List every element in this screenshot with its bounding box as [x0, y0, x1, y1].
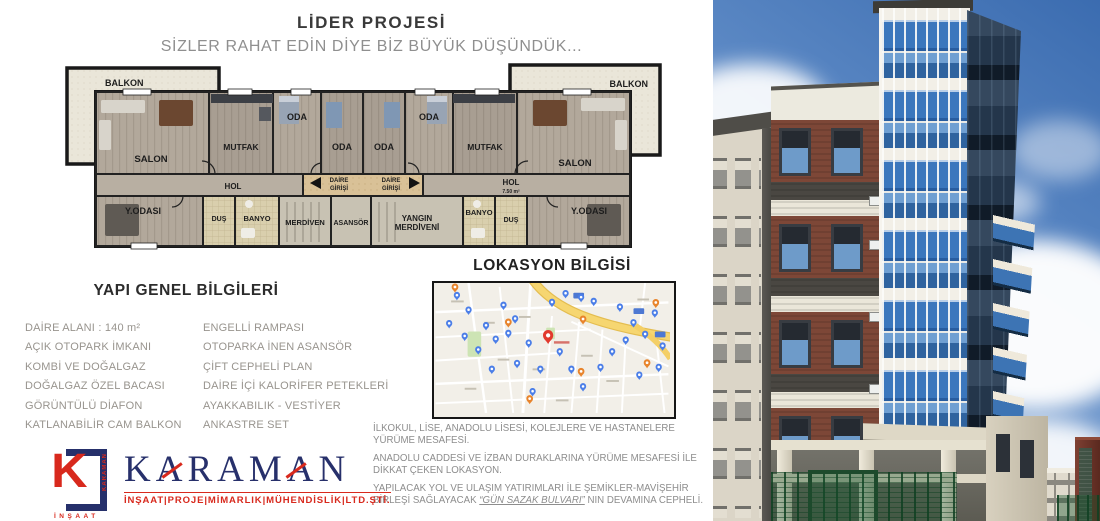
feature-item: ÇİFT CEPHELİ PLAN: [203, 358, 389, 377]
entrance-label-left-1: DAİRE: [330, 177, 349, 184]
feature-item: DAİRE ALANI : 140 m²: [25, 319, 182, 338]
logo-wordmark: KARAMAN: [124, 451, 391, 488]
logo-vertical-text: KARAMAN: [102, 453, 108, 491]
window: [779, 128, 811, 176]
room-label-mutfak-left: MUTFAK: [223, 142, 259, 152]
construction-fence-right: [1057, 495, 1100, 521]
window: [831, 128, 863, 176]
window: [1020, 440, 1034, 478]
map-drawing: [434, 283, 670, 413]
entrance-label-left-2: GİRİŞİ: [330, 185, 348, 192]
location-notes: İLKOKUL, LİSE, ANADOLU LİSESİ, KOLEJLERE…: [373, 423, 713, 514]
feature-item: ANKASTRE SET: [203, 416, 389, 435]
room-label-balkon-right: BALKON: [610, 79, 649, 89]
room-label-oda-right-2: ODA: [374, 142, 395, 152]
logo-mark: K KARAMAN İNŞAAT: [52, 447, 112, 511]
feature-item: KATLANABİLİR CAM BALKON: [25, 416, 182, 435]
feature-item: DAİRE İÇİ KALORİFER PETEKLERİ: [203, 377, 389, 396]
paragraph-3: YAPILACAK YOL VE ULAŞIM YATIRIMLARI İLE …: [373, 483, 713, 506]
paragraph-2: ANADOLU CADDESİ VE İZBAN DURAKLARINA YÜR…: [373, 453, 713, 476]
feature-item: AYAKKABILIK - VESTİYER: [203, 397, 389, 416]
feature-item: AÇIK OTOPARK İMKANI: [25, 338, 182, 357]
flyer-panel: LİDER PROJESİ SİZLER RAHAT EDİN DİYE BİZ…: [0, 0, 713, 521]
room-label-oda-left-1: ODA: [287, 112, 308, 122]
room-label-yangin-1: YANGIN: [402, 214, 433, 223]
logo-word-block: KARAMAN İNŞAAT|PROJE|MİMARLIK|MÜHENDİSLİ…: [124, 447, 391, 508]
plan-corridor: [96, 174, 630, 196]
paragraph-1: İLKOKUL, LİSE, ANADOLU LİSESİ, KOLEJLERE…: [373, 423, 713, 446]
features-left-column: DAİRE ALANI : 140 m²AÇIK OTOPARK İMKANIK…: [25, 319, 182, 435]
fence-gate: [808, 470, 878, 521]
neighbor-windows-grid: [713, 158, 761, 518]
neighbor-building: [713, 128, 773, 521]
features-right-column: ENGELLİ RAMPASIOTOPARKA İNEN ASANSÖRÇİFT…: [203, 319, 389, 435]
boulevard-name: “GÜN SAZAK BULVARI”: [479, 495, 585, 506]
room-label-yodasi-right: Y.ODASI: [571, 206, 607, 216]
feature-item: KOMBİ VE DOĞALGAZ: [25, 358, 182, 377]
floor-plan: BALKON BALKON SALON MUTFAK ODA ODA ODA O…: [63, 62, 667, 256]
room-label-balkon-left: BALKON: [105, 78, 144, 88]
room-label-dus-left: DUŞ: [212, 216, 227, 223]
room-label-hol-area: 7.50 m²: [502, 189, 520, 195]
logo-tagline: İNŞAAT|PROJE|MİMARLIK|MÜHENDİSLİK|LTD.ŞT…: [124, 492, 391, 506]
side-wall: [986, 416, 1048, 521]
feature-item: ENGELLİ RAMPASI: [203, 319, 389, 338]
window: [831, 224, 863, 272]
paragraph-3-tail: NIN DEVAMINA CEPHELİ.: [585, 495, 703, 506]
room-label-banyo-left: BANYO: [243, 214, 270, 223]
room-label-salon-left: SALON: [134, 154, 167, 165]
room-label-asansor: ASANSÖR: [333, 218, 368, 227]
window: [779, 224, 811, 272]
feature-item: DOĞALGAZ ÖZEL BACASI: [25, 377, 182, 396]
karaman-logo: K KARAMAN İNŞAAT KARAMAN İNŞAAT|PROJE|Mİ…: [52, 447, 391, 511]
feature-item: OTOPARKA İNEN ASANSÖR: [203, 338, 389, 357]
cloud: [1010, 120, 1100, 180]
room-label-merdiven: MERDİVEN: [285, 218, 325, 227]
room-label-oda-left-2: ODA: [332, 142, 353, 152]
window: [779, 320, 811, 368]
logo-insaat-label: İNŞAAT: [54, 513, 99, 520]
floor-plan-drawing: BALKON BALKON SALON MUTFAK ODA ODA ODA O…: [63, 62, 667, 256]
room-label-banyo-right: BANYO: [465, 208, 492, 217]
location-heading: LOKASYON BİLGİSİ: [432, 257, 672, 275]
logo-k-letter: K: [51, 443, 87, 501]
room-label-salon-right: SALON: [558, 158, 591, 169]
feature-item: GÖRÜNTÜLÜ DİAFON: [25, 397, 182, 416]
room-label-hol-right: HOL: [503, 178, 520, 187]
project-subtitle: SİZLER RAHAT EDİN DİYE BİZ BÜYÜK DÜŞÜNDÜ…: [15, 38, 728, 56]
room-label-yodasi-left: Y.ODASI: [125, 206, 161, 216]
room-label-oda-right-1: ODA: [419, 112, 440, 122]
window: [831, 320, 863, 368]
window: [996, 434, 1010, 472]
entrance-label-right-1: DAİRE: [382, 177, 401, 184]
room-label-mutfak-right: MUTFAK: [467, 142, 503, 152]
building-photo: [713, 0, 1100, 521]
general-info-heading: YAPI GENEL BİLGİLERİ: [20, 282, 352, 300]
location-map: [432, 281, 676, 419]
room-label-yangin-2: MERDİVENİ: [395, 223, 439, 232]
entrance-label-right-2: GİRİŞİ: [382, 185, 400, 192]
project-title: LİDER PROJESİ: [15, 13, 728, 33]
room-label-dus-right: DUŞ: [504, 217, 519, 224]
glass-balcony-column: [879, 8, 970, 432]
room-label-hol-left: HOL: [225, 182, 242, 191]
